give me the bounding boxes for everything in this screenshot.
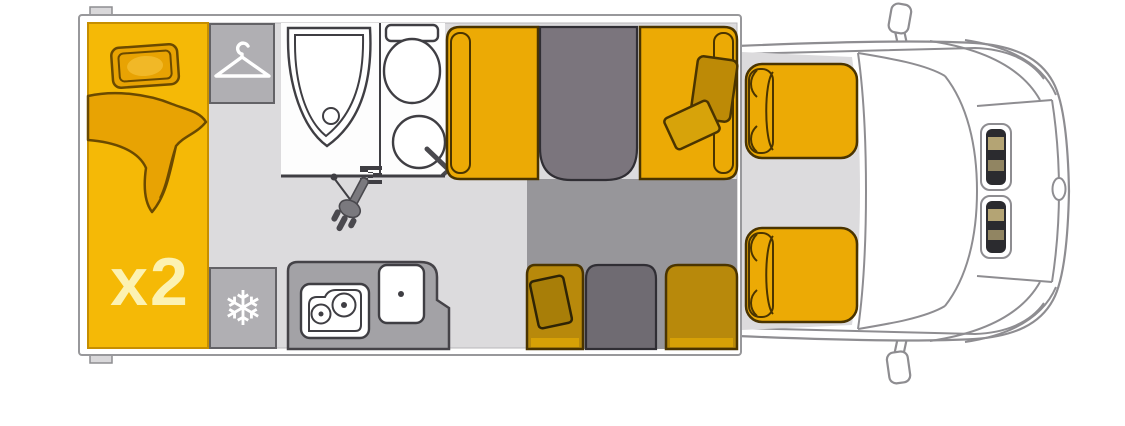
fridge: ❄ bbox=[210, 268, 276, 348]
front-emblem bbox=[1053, 178, 1066, 200]
dinette-front bbox=[447, 27, 738, 180]
floorplan-svg: x2 bbox=[0, 0, 1125, 426]
hob bbox=[301, 284, 369, 338]
headlight-lower bbox=[981, 196, 1011, 258]
dinette-rear bbox=[527, 265, 737, 349]
dinette-table-top bbox=[540, 27, 637, 180]
passenger-seat bbox=[746, 64, 857, 158]
rear-bed: x2 bbox=[88, 23, 208, 348]
kitchen-counter bbox=[288, 262, 449, 349]
bed-pillow bbox=[111, 44, 180, 89]
vehicle-cab-front bbox=[737, 2, 1069, 384]
kitchen-sink bbox=[379, 265, 424, 323]
snowflake-icon: ❄ bbox=[223, 283, 263, 336]
driver-seat bbox=[746, 228, 857, 322]
floorplan-canvas: x2 bbox=[0, 0, 1125, 426]
toilet bbox=[384, 25, 440, 103]
dinette-seat-4 bbox=[666, 265, 737, 349]
dinette-table-bottom bbox=[586, 265, 656, 349]
bed-capacity-label: x2 bbox=[110, 244, 190, 320]
sink-drain bbox=[398, 291, 404, 297]
dinette-seat-1 bbox=[447, 27, 538, 179]
wardrobe bbox=[210, 24, 274, 103]
headlight-upper bbox=[981, 124, 1011, 190]
